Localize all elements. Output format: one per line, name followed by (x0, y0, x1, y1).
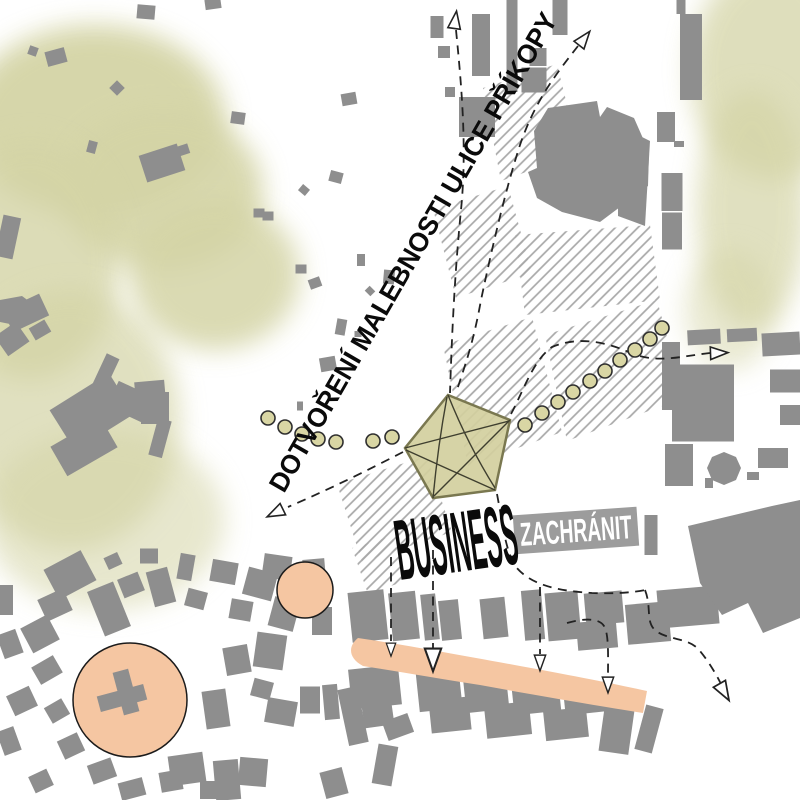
building-footprint (201, 689, 230, 730)
arrow-head-icon (264, 503, 285, 522)
business-label: BUSINESS (389, 487, 523, 599)
building-footprint (250, 678, 274, 701)
building-footprint (328, 170, 343, 184)
building-footprint (445, 87, 455, 97)
pathway-dot (628, 343, 642, 357)
pathway-dot (329, 435, 343, 449)
building-footprint (687, 329, 721, 346)
building-footprint (758, 448, 788, 468)
building-footprint (209, 559, 238, 585)
building-footprint (761, 332, 800, 357)
pathway-dot (551, 395, 565, 409)
building-footprint (28, 769, 54, 794)
building-footprint (238, 757, 268, 787)
focus-circle (277, 562, 333, 618)
building-footprint (576, 619, 618, 650)
building-footprint (20, 615, 60, 654)
urban-plan-map: DOTVOŘENÍ MALEBNOSTI ULICE PŘÍKOPY ZACHR… (0, 0, 800, 800)
pathway-dot (366, 434, 380, 448)
building-footprint (677, 0, 686, 14)
pathway-dot (613, 353, 627, 367)
building-footprint (228, 598, 253, 622)
building-footprint (484, 701, 532, 739)
arrow-head-icon (448, 10, 463, 29)
building-footprint (264, 697, 298, 727)
building-footprint (420, 593, 440, 640)
building-footprint (431, 16, 444, 38)
building-footprint (322, 684, 340, 720)
building-footprint (204, 0, 221, 10)
building-footprint (770, 370, 800, 393)
building-footprint (438, 46, 450, 58)
arrow-head-icon (713, 680, 735, 704)
building-footprint (662, 213, 682, 250)
building-footprint (222, 644, 251, 676)
pathway-dot (566, 385, 580, 399)
building-footprint (0, 585, 13, 615)
building-footprint (665, 444, 693, 486)
green-area (130, 200, 300, 350)
pathway-dot (643, 332, 657, 346)
building-footprint (780, 405, 800, 425)
building-footprint (372, 744, 399, 787)
building-footprint (168, 752, 207, 787)
pathway-dot (655, 321, 669, 335)
building-footprint (543, 707, 589, 741)
pathway-dot (385, 430, 399, 444)
building-footprint (662, 173, 683, 211)
building-footprint (230, 111, 246, 125)
hatched-block (515, 225, 660, 315)
building-footprint (297, 402, 303, 411)
building-footprint (184, 588, 208, 611)
building-footprint (727, 328, 758, 343)
pathway-dot (535, 406, 549, 420)
building-footprint (438, 599, 462, 641)
green-area (685, 250, 775, 370)
building-footprint (357, 254, 365, 266)
building-footprint (138, 398, 147, 411)
building-footprint (472, 14, 490, 76)
map-canvas: DOTVOŘENÍ MALEBNOSTI ULICE PŘÍKOPY ZACHR… (0, 0, 800, 800)
building-footprint (296, 265, 307, 274)
building-footprint (44, 698, 70, 724)
building-footprint (645, 515, 658, 555)
building-footprint (263, 212, 274, 221)
building-footprint (0, 629, 24, 659)
building-footprint (140, 549, 158, 564)
zachranit-badge: ZACHRÁNIT (513, 507, 639, 555)
pathway-dot (261, 411, 275, 425)
building-footprint (319, 767, 348, 799)
arrow-head-icon (534, 655, 545, 671)
building-footprint (213, 759, 241, 800)
building-footprint (253, 632, 288, 671)
building-block (618, 125, 650, 226)
building-footprint (335, 318, 348, 335)
building-footprint (31, 655, 63, 685)
building-footprint (57, 732, 85, 759)
pathway-dot (518, 418, 532, 432)
zachranit-label: ZACHRÁNIT (519, 508, 633, 553)
building-footprint (308, 276, 323, 290)
building-footprint (298, 184, 310, 196)
building-footprint (428, 696, 471, 733)
pathway-dot (598, 364, 612, 378)
building-footprint (672, 365, 734, 442)
building-footprint (87, 757, 117, 784)
building-footprint (6, 686, 38, 717)
pathway-dot (583, 374, 597, 388)
building-footprint (680, 14, 702, 100)
building-footprint (544, 591, 581, 642)
building-footprint (657, 112, 675, 142)
building-footprint (747, 472, 759, 480)
building-footprint (0, 726, 22, 756)
building-footprint (136, 4, 155, 20)
building-footprint (118, 777, 147, 800)
building-footprint (341, 92, 358, 106)
pathway-dot (278, 420, 292, 434)
building-footprint (348, 664, 402, 709)
building-footprint (479, 597, 508, 639)
building-footprint (300, 687, 320, 714)
building-footprint (674, 141, 684, 147)
building-footprint (347, 589, 388, 642)
building-footprint (521, 589, 545, 641)
